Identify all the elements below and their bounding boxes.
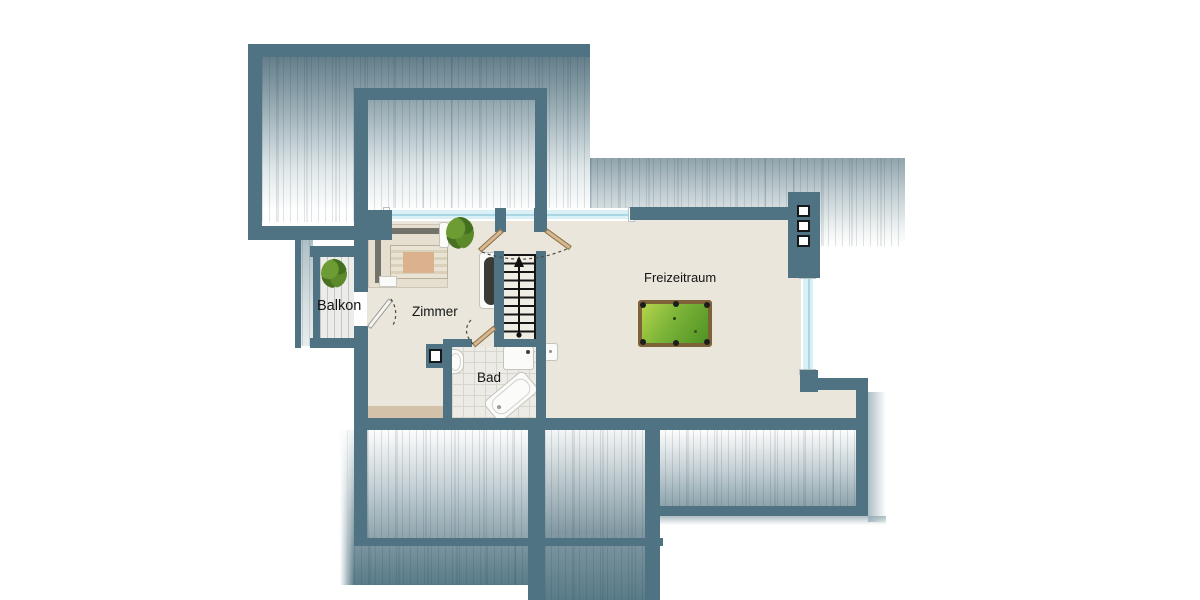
door-swing-arc [482, 248, 569, 259]
stairs-up-arrow-head [514, 256, 524, 267]
door-swing-arc [391, 299, 396, 327]
plant-icon [321, 259, 347, 288]
room-label-balkon: Balkon [317, 298, 361, 314]
annotation-overlay [0, 0, 1200, 600]
room-label-zimmer: Zimmer [412, 304, 458, 319]
room-label-freizeitraum: Freizeitraum [644, 270, 716, 285]
door-swing-arc [466, 320, 473, 344]
room-label-bad: Bad [477, 370, 501, 385]
stairs-arrow-base [516, 332, 521, 337]
floorplan-canvas: Balkon Zimmer Bad Freizeitraum [0, 0, 1200, 600]
